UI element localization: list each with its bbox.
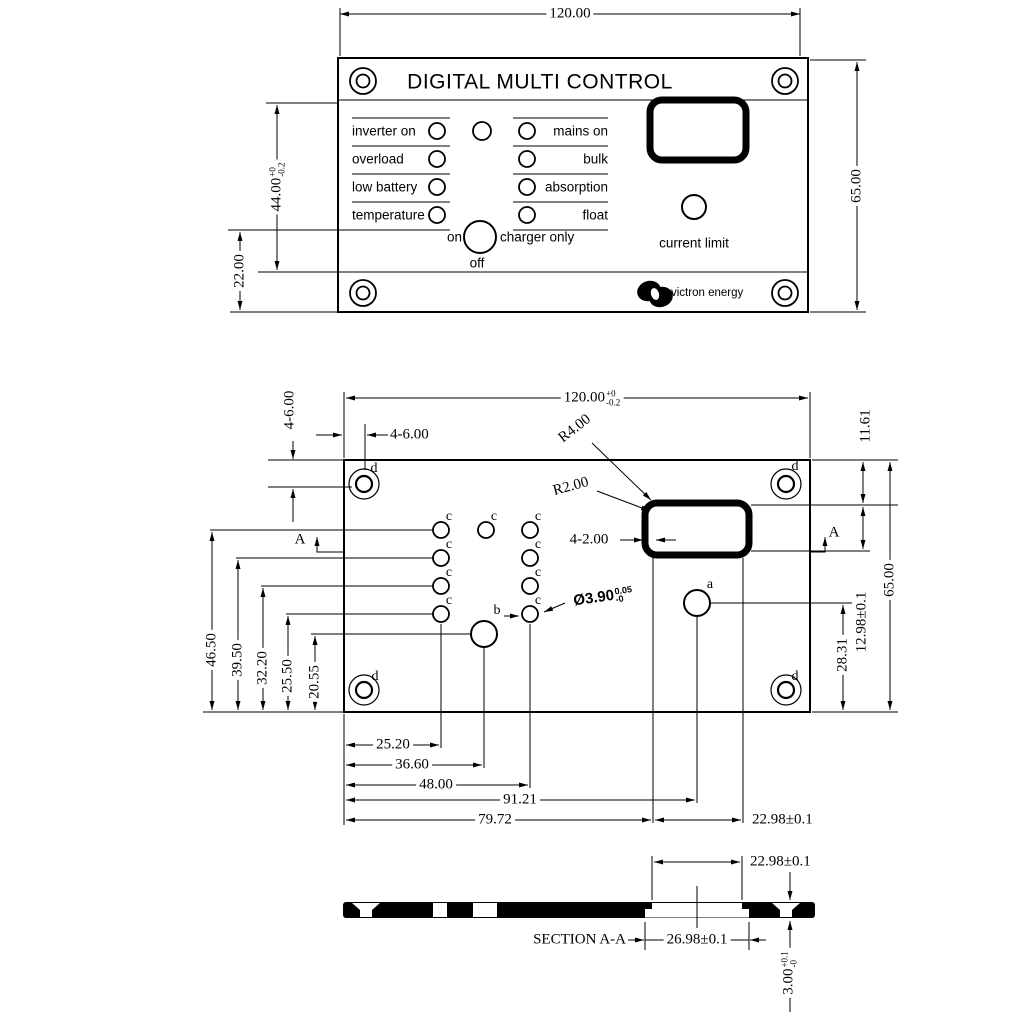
hole-c-label: c: [446, 566, 452, 580]
led-label-temperature: temperature: [352, 208, 425, 222]
dim-row5: 20.55: [308, 662, 323, 702]
dim-section-thickness: 3.00+0.1-0: [781, 948, 798, 998]
led-label-bulk: bulk: [583, 152, 608, 166]
section-mark-left: A: [295, 533, 306, 548]
technical-drawing: 120.00 DIGITAL MULTI CONTROL inverter on…: [0, 0, 1024, 1024]
hole-c-label: c: [446, 594, 452, 608]
dim-cutout-height: 12.98±0.1: [855, 592, 870, 653]
dim-cutout-top-offset: 11.61: [859, 409, 874, 442]
led-label-overload: overload: [352, 152, 404, 166]
dim-front-width: 120.00: [546, 7, 593, 22]
front-panel-view: [228, 8, 866, 312]
hole-d-label: d: [371, 462, 378, 476]
switch-off-label: off: [470, 256, 485, 270]
dim-section-bottom-width: 26.98±0.1: [664, 933, 731, 948]
dim-row3: 32.20: [256, 648, 271, 688]
panel-title: DIGITAL MULTI CONTROL: [407, 72, 673, 93]
hole-d-label: d: [372, 670, 379, 684]
led-label-mains-on: mains on: [553, 124, 608, 138]
dim-plate-height: 65.00: [883, 560, 898, 600]
dim-section-top-width: 22.98±0.1: [750, 855, 811, 870]
dim-led-area: 44.00+0-0.2: [269, 160, 286, 215]
hole-b-label: b: [494, 604, 501, 618]
hole-d-label: d: [792, 670, 799, 684]
dim-switch-height: 22.00: [233, 251, 248, 291]
hole-c-label: c: [535, 510, 541, 524]
hole-c-label: c: [491, 510, 497, 524]
led-label-inverter-on: inverter on: [352, 124, 416, 138]
hole-c-label: c: [535, 594, 541, 608]
dim-row4: 25.50: [281, 656, 296, 696]
led-label-low-battery: low battery: [352, 180, 417, 194]
dim-corner-offset-v: 4-6.00: [283, 391, 298, 430]
brand-label: victron energy: [671, 287, 743, 299]
hole-c-label: c: [446, 510, 452, 524]
dim-col4: 91.21: [500, 793, 540, 808]
hole-c-label: c: [535, 566, 541, 580]
hole-d-label: d: [792, 460, 799, 474]
dim-cutout-wall: 4-2.00: [570, 533, 609, 548]
section-mark-right: A: [829, 526, 840, 541]
section-label: SECTION A-A: [533, 933, 626, 948]
dim-col2: 36.60: [392, 758, 432, 773]
dim-col3: 48.00: [416, 778, 456, 793]
led-label-absorption: absorption: [545, 180, 608, 194]
dim-col5: 79.72: [475, 813, 515, 828]
hole-c-label: c: [446, 538, 452, 552]
dim-hole-a-offset: 28.31: [836, 635, 851, 675]
charger-only-label: charger only: [500, 230, 574, 244]
dim-cutout-width: 22.98±0.1: [752, 813, 813, 828]
hole-c-label: c: [535, 538, 541, 552]
current-limit-label: current limit: [659, 236, 729, 250]
switch-on-label: on: [447, 230, 462, 244]
drawing-canvas: [0, 0, 1024, 1024]
hole-a-label: a: [707, 578, 713, 592]
dim-corner-offset-h: 4-6.00: [390, 428, 429, 443]
dim-front-height: 65.00: [850, 166, 865, 206]
dim-row1: 46.50: [205, 630, 220, 670]
led-label-float: float: [582, 208, 608, 222]
dim-plate-width: 120.00+0-0.2: [561, 390, 624, 407]
dim-col1: 25.20: [373, 738, 413, 753]
plate-view: [203, 392, 898, 825]
dim-row2: 39.50: [231, 640, 246, 680]
